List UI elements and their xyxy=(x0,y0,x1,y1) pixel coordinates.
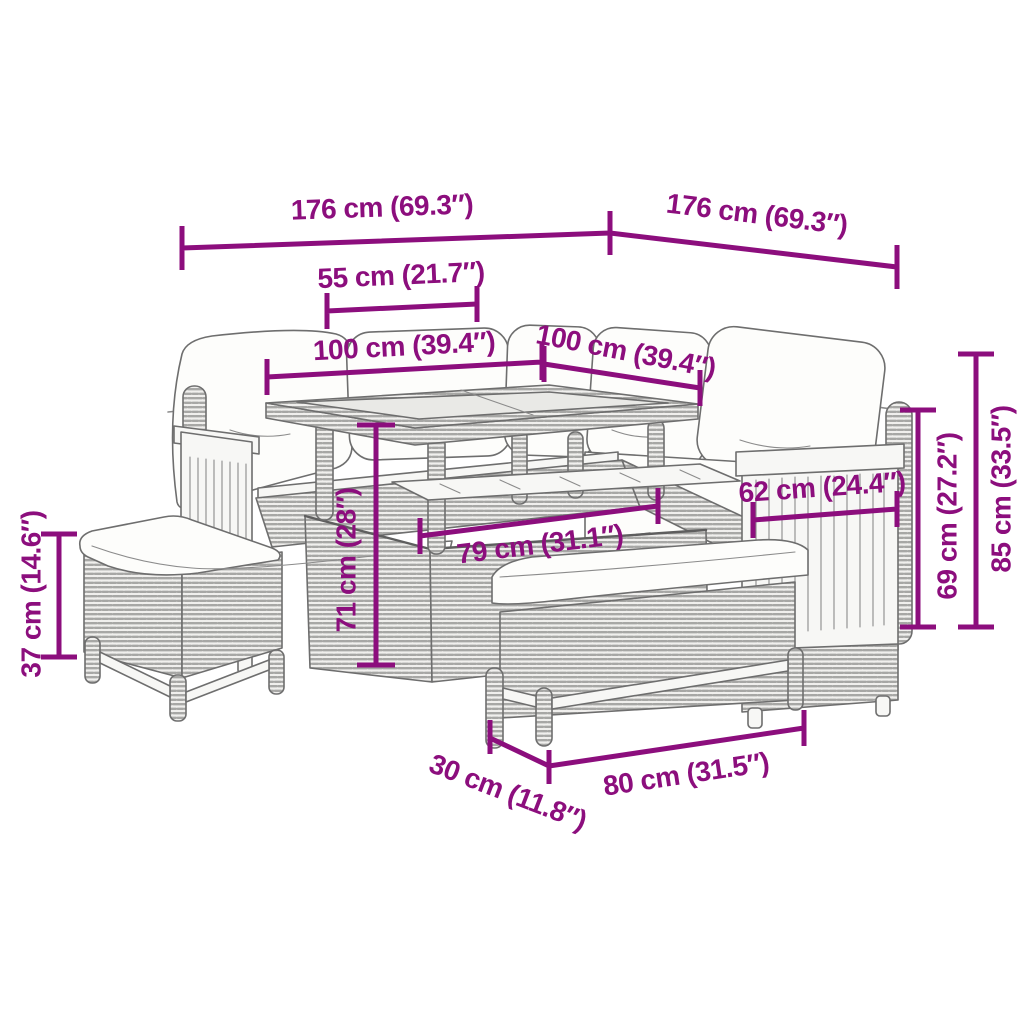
dimension-label: 37 cm (14.6″) xyxy=(16,510,47,677)
dimension-diagram-page: 176 cm (69.3″) 176 cm (69.3″) 55 cm (21.… xyxy=(0,0,1024,1024)
sofa-foot xyxy=(876,696,890,716)
dimension-line xyxy=(610,233,897,289)
dimension-label: 176 cm (69.3″) xyxy=(290,188,473,225)
dimension-sofa-height: 85 cm (33.5″) xyxy=(958,354,1017,627)
bench-leg xyxy=(269,650,284,694)
bench-leg xyxy=(536,688,552,746)
dimension-table-depth: 55 cm (21.7″) xyxy=(317,256,485,329)
dimension-label: 85 cm (33.5″) xyxy=(986,405,1017,572)
furniture-dimension-diagram: 176 cm (69.3″) 176 cm (69.3″) 55 cm (21.… xyxy=(0,0,1024,1024)
dimension-label: 176 cm (69.3″) xyxy=(665,188,850,241)
sofa-foot xyxy=(748,708,762,728)
bench-leg xyxy=(788,648,803,710)
dimension-bench-height: 37 cm (14.6″) xyxy=(16,510,78,677)
dimension-sofa-right-width: 176 cm (69.3″) xyxy=(610,188,897,289)
bench-leg xyxy=(85,637,100,683)
dimension-sofa-left-width: 176 cm (69.3″) xyxy=(182,188,610,270)
dimension-label: 55 cm (21.7″) xyxy=(317,256,485,294)
dimension-label: 69 cm (27.2″) xyxy=(932,432,963,599)
bench-leg xyxy=(170,675,186,721)
dimension-bench-depth: 30 cm (11.8″) xyxy=(425,720,591,836)
dimension-bench-width: 80 cm (31.5″) xyxy=(549,710,804,802)
dimension-label: 71 cm (28″) xyxy=(331,488,362,633)
table-base-side xyxy=(305,516,432,682)
